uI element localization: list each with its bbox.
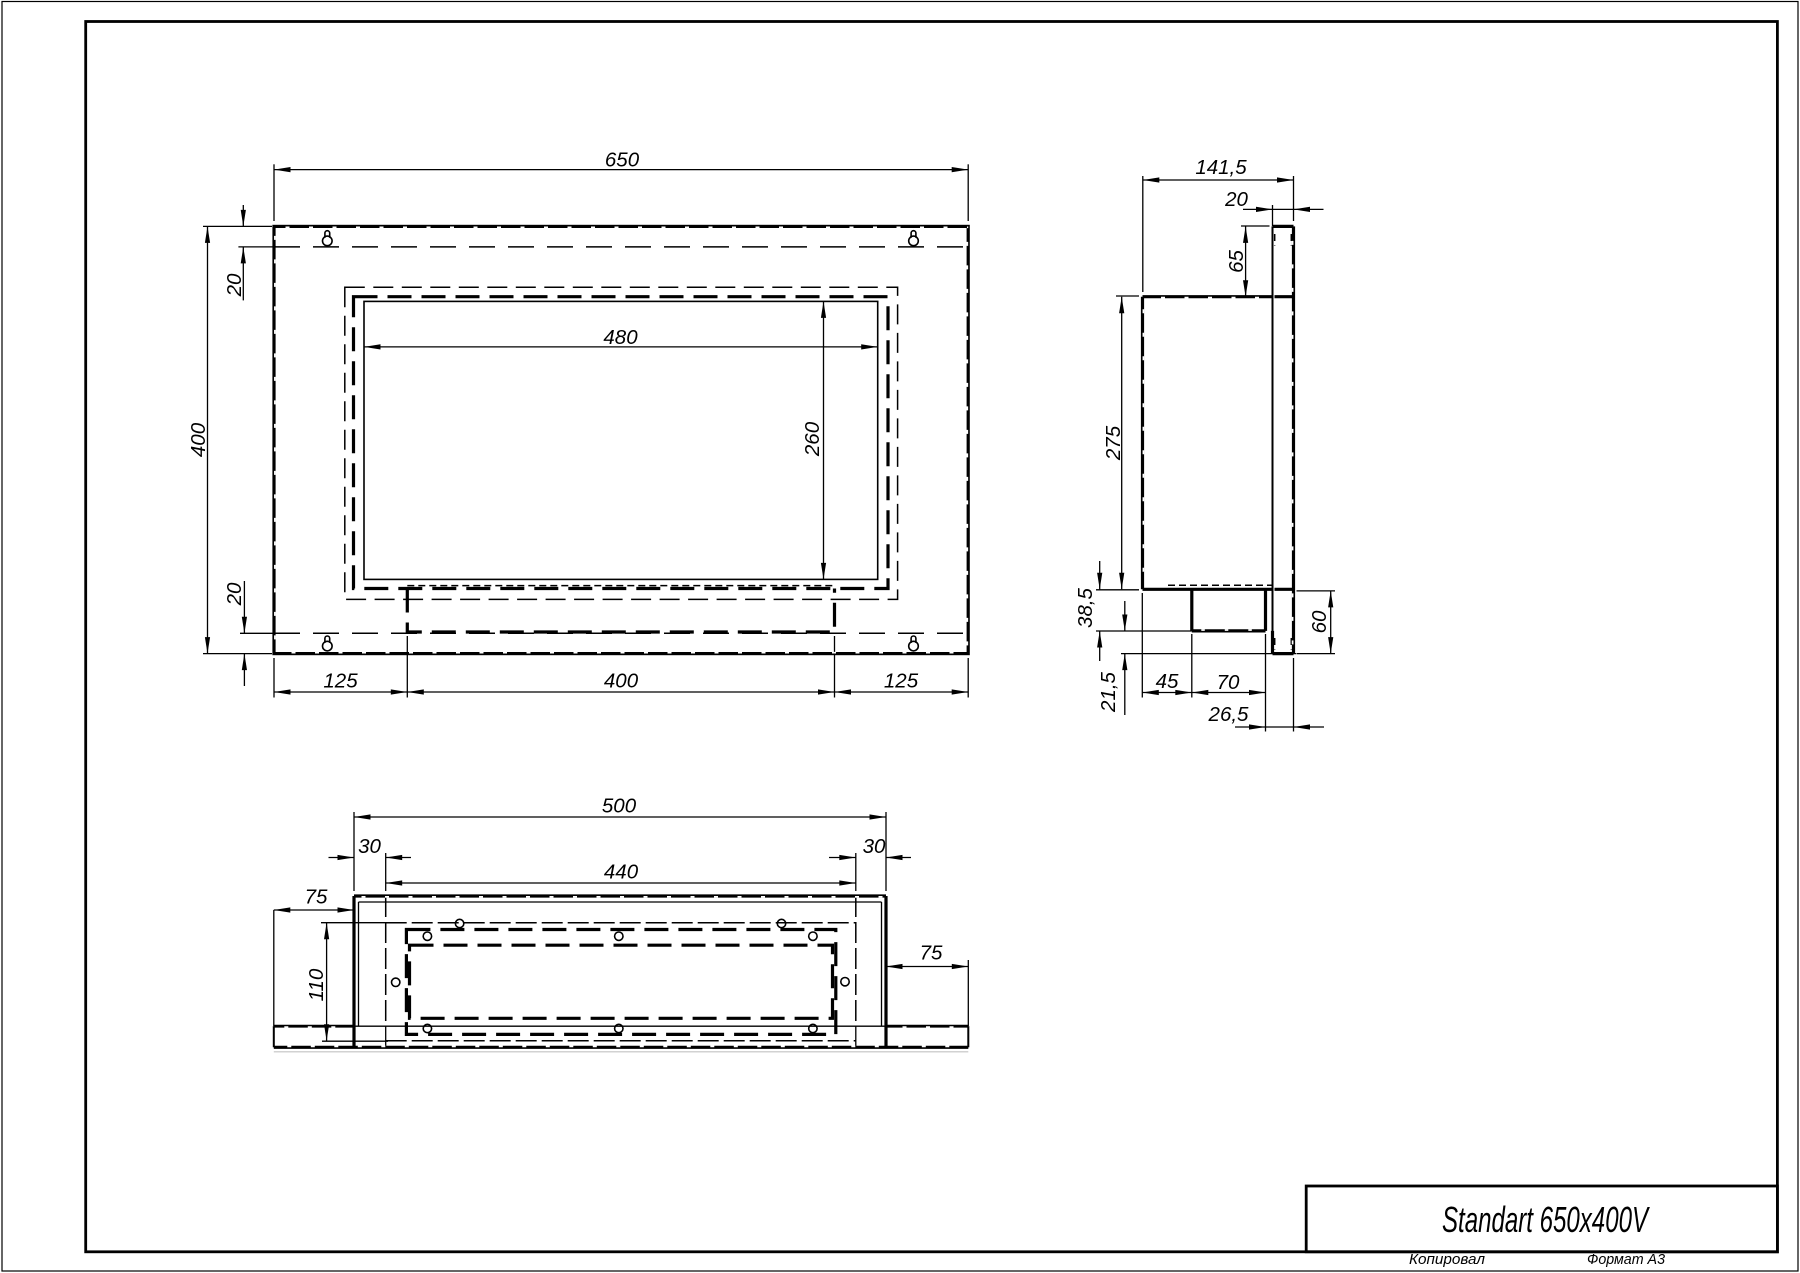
svg-text:Формат А3: Формат А3	[1587, 1251, 1666, 1268]
svg-text:400: 400	[604, 670, 639, 693]
svg-text:65: 65	[1225, 250, 1248, 273]
svg-text:440: 440	[604, 861, 639, 884]
svg-text:Копировал: Копировал	[1409, 1251, 1486, 1268]
svg-text:275: 275	[1102, 425, 1125, 461]
svg-text:260: 260	[801, 421, 824, 457]
svg-text:45: 45	[1156, 670, 1179, 693]
svg-text:75: 75	[305, 886, 328, 909]
svg-text:75: 75	[920, 942, 943, 965]
svg-text:500: 500	[602, 795, 637, 818]
svg-text:400: 400	[187, 422, 210, 457]
svg-text:20: 20	[223, 582, 246, 606]
svg-text:21,5: 21,5	[1097, 671, 1120, 712]
svg-text:480: 480	[603, 326, 638, 349]
svg-text:38,5: 38,5	[1074, 587, 1097, 627]
svg-text:30: 30	[863, 835, 886, 858]
svg-text:20: 20	[223, 273, 246, 297]
svg-text:60: 60	[1308, 610, 1331, 633]
svg-text:30: 30	[358, 835, 381, 858]
svg-text:110: 110	[305, 968, 328, 1001]
svg-text:125: 125	[884, 670, 919, 693]
svg-text:20: 20	[1224, 188, 1248, 211]
svg-text:26,5: 26,5	[1208, 703, 1249, 726]
svg-text:650: 650	[605, 148, 640, 171]
svg-text:125: 125	[323, 670, 358, 693]
svg-text:Standart 650x400V: Standart 650x400V	[1442, 1199, 1650, 1240]
svg-text:70: 70	[1217, 671, 1240, 694]
svg-text:141,5: 141,5	[1195, 156, 1247, 179]
